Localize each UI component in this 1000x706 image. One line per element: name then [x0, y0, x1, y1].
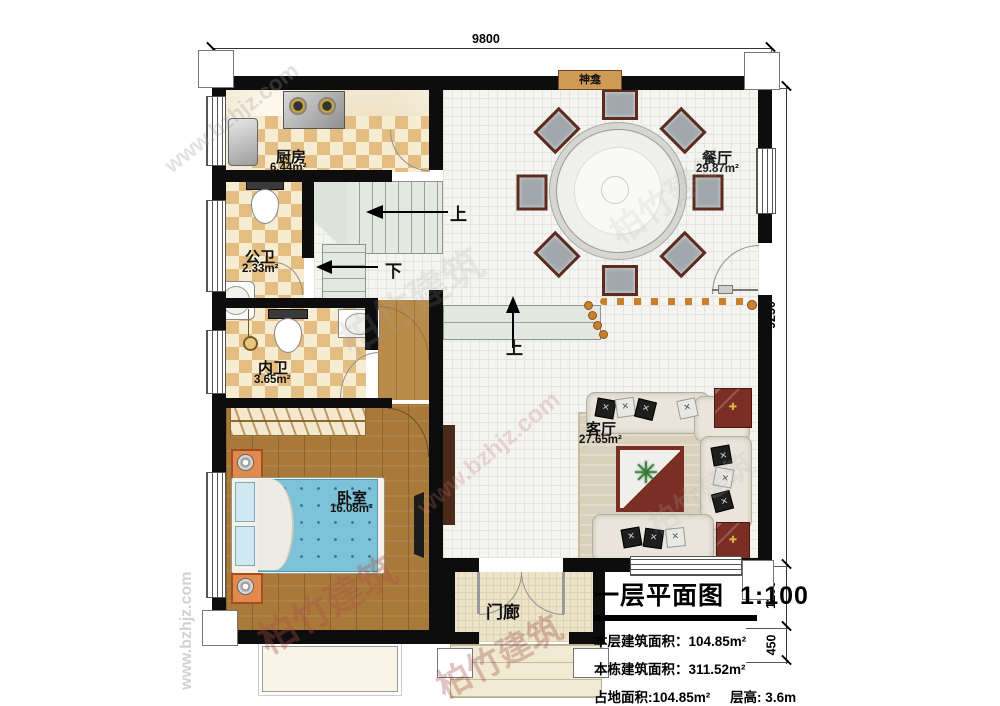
plant: ✳	[628, 456, 664, 492]
sofa-cushion: ✕	[615, 397, 636, 418]
door-knob-dot	[747, 300, 757, 310]
pillow	[235, 482, 255, 522]
stat-building-area: 本栋建筑面积：311.52m²	[594, 658, 794, 678]
inner-bath-area: 3.65m²	[254, 374, 290, 386]
steps-up-arrowhead	[506, 296, 520, 313]
window-public-bath	[206, 200, 226, 292]
dining-table-deco	[601, 176, 629, 204]
nightstand-knob	[237, 454, 254, 471]
floor-plan-canvas: ✕ ✕ ✕ ✕ ✕ ✕ ✕ ✕ ✕ ✕ ✳ ✚ ✚	[0, 0, 1000, 706]
dining-chair	[602, 265, 638, 296]
terrace	[262, 646, 398, 692]
stat-floor-area: 本层建筑面积：104.85m²	[594, 630, 794, 650]
sofa-cushion: ✕	[665, 527, 686, 548]
wall-bedroom-right	[429, 400, 443, 644]
window-kitchen	[206, 96, 226, 166]
stairs-up-label: 上	[450, 200, 467, 225]
porch-door-leaf	[562, 572, 565, 614]
public-bath-area: 2.33m²	[242, 263, 278, 275]
window-inner-bath	[206, 330, 226, 394]
dining-area: 29.87m²	[696, 163, 739, 175]
stairs-down-arrowhead	[316, 260, 332, 274]
door-entry-handle	[718, 285, 733, 294]
stairs-up-arrow	[382, 211, 448, 213]
wall-top	[212, 76, 772, 90]
bedroom-tv	[414, 492, 424, 558]
stair-flight-down	[322, 244, 366, 306]
lamp-cord	[248, 309, 249, 337]
wall-pier	[198, 50, 234, 88]
kitchen-area: 6.44m²	[270, 162, 306, 174]
wall-bedroom-top	[212, 398, 392, 408]
watermark-text: www.bzhjz.com	[178, 571, 196, 690]
wall-publicbath-bottom	[212, 298, 378, 308]
dining-chair	[517, 175, 548, 211]
kitchen-sink	[228, 118, 258, 166]
wall-publicbath-right	[302, 178, 314, 258]
sofa-cushion: ✕	[712, 466, 734, 488]
lamp	[243, 336, 258, 351]
dining-chair	[602, 89, 638, 120]
tv-cabinet	[443, 425, 455, 525]
bed-sheet-fold	[252, 479, 294, 570]
wall-kitchen-right	[429, 88, 443, 170]
wall-bedroom-bottom	[212, 630, 443, 644]
dim-top-value: 9800	[472, 32, 500, 46]
wall-porch-top	[563, 558, 605, 572]
sofa-cushion: ✕	[620, 526, 642, 548]
wall-right	[758, 210, 772, 243]
window-living	[630, 556, 742, 576]
title-block: 一层平面图 1:100 本层建筑面积：104.85m² 本栋建筑面积：311.5…	[594, 576, 794, 706]
wall-pier	[744, 52, 780, 90]
title-underline	[594, 615, 757, 621]
wall-passage-right	[429, 290, 443, 400]
sofa-cushion: ✕	[676, 397, 699, 420]
platform-dotted-edge	[600, 298, 752, 305]
nightstand-knob	[237, 578, 254, 595]
wall-pier	[437, 648, 473, 678]
wall-innerbath-right	[365, 308, 378, 350]
wall-right	[758, 295, 772, 558]
side-table-red: ✚	[714, 388, 752, 428]
plan-title: 一层平面图	[594, 582, 724, 610]
stat-land-area: 占地面积:104.85m²	[594, 690, 710, 705]
window-dining	[756, 148, 776, 214]
wall-bottom-living	[605, 558, 631, 572]
stairs-up-arrowhead	[366, 205, 383, 219]
wall-porch-top	[443, 558, 479, 572]
stat-storey-height: 层高: 3.6m	[730, 690, 796, 705]
stairs-down-arrow	[330, 266, 378, 268]
stove-burner	[289, 97, 307, 115]
platform-dot	[599, 330, 608, 339]
steps-up-label: 上	[506, 334, 523, 359]
dim-line-top	[212, 48, 772, 49]
sofa-cushion: ✕	[594, 397, 616, 419]
side-table-red: ✚	[716, 522, 750, 560]
platform-dot	[588, 311, 597, 320]
wardrobe	[230, 406, 366, 436]
platform-dot	[593, 321, 602, 330]
wall-porch-bottom	[443, 632, 479, 644]
bedroom-area: 16.08m²	[330, 503, 373, 515]
platform-dot	[584, 301, 593, 310]
pillow	[235, 526, 255, 566]
plan-scale: 1:100	[740, 582, 809, 610]
shrine-label: 神龛	[579, 74, 601, 86]
window-bedroom	[206, 472, 226, 598]
sofa-cushion: ✕	[643, 528, 664, 549]
stove-burner	[318, 97, 336, 115]
dining-chair	[693, 175, 724, 211]
sofa-cushion: ✕	[710, 444, 732, 466]
stairs-down-label: 下	[385, 257, 402, 282]
porch-door-leaf	[477, 572, 480, 614]
living-area: 27.65m²	[579, 434, 622, 446]
porch-label: 门廊	[486, 598, 520, 623]
wall-pier	[202, 610, 238, 646]
shrine-box: 神龛	[558, 70, 622, 90]
